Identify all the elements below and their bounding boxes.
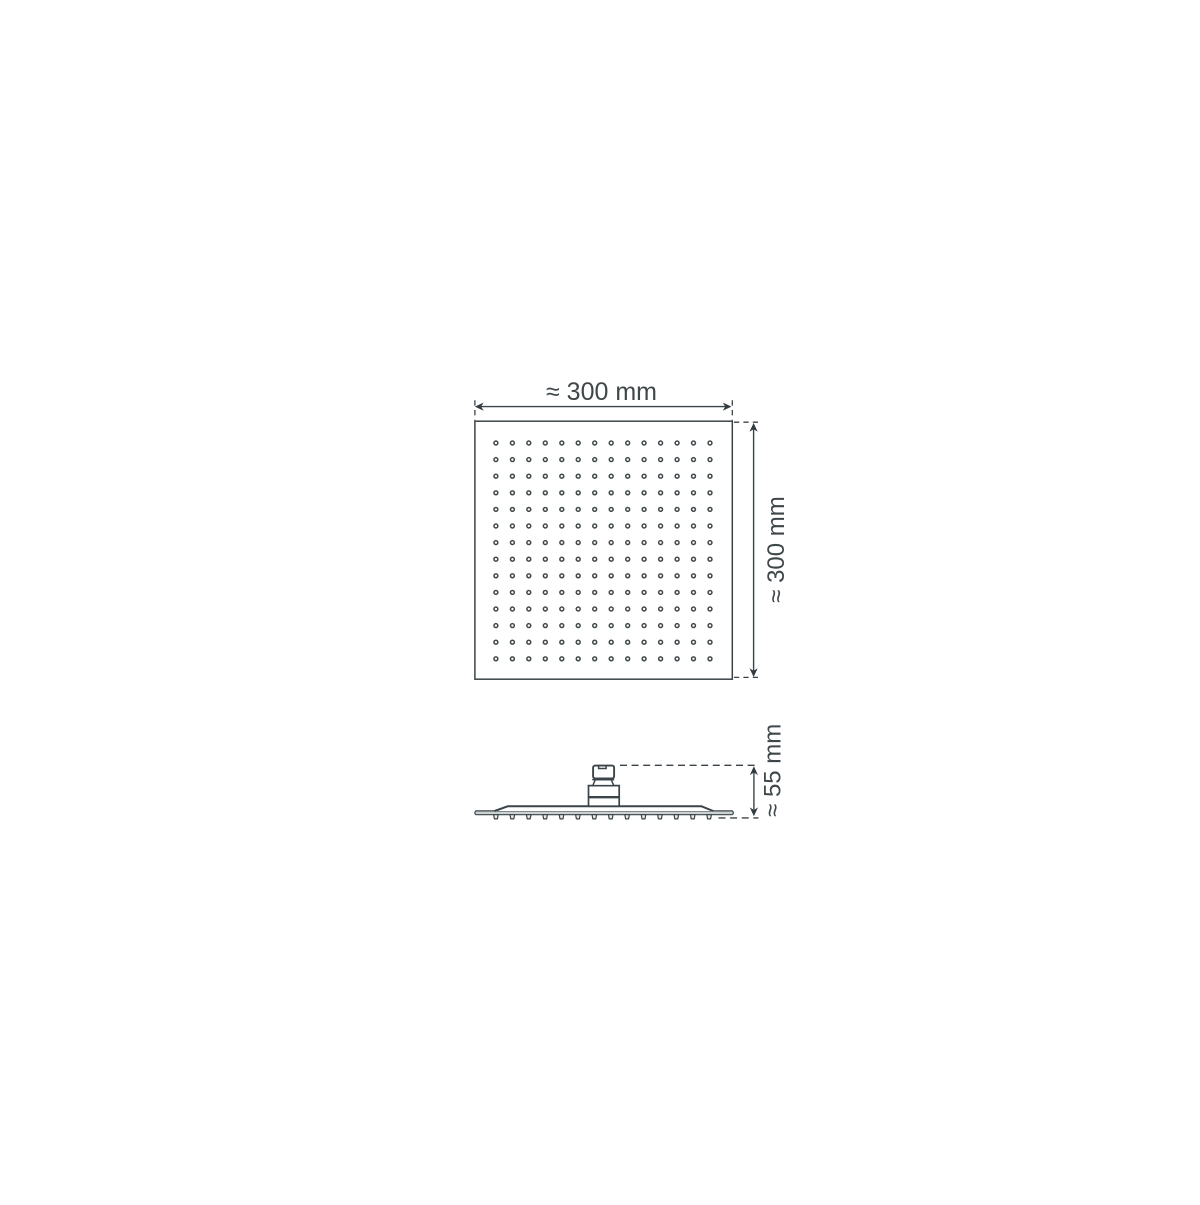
svg-text:≈ 300 mm: ≈ 300 mm bbox=[546, 378, 657, 406]
svg-text:≈ 55 mm: ≈ 55 mm bbox=[759, 724, 786, 817]
svg-text:≈ 300 mm: ≈ 300 mm bbox=[763, 496, 790, 603]
